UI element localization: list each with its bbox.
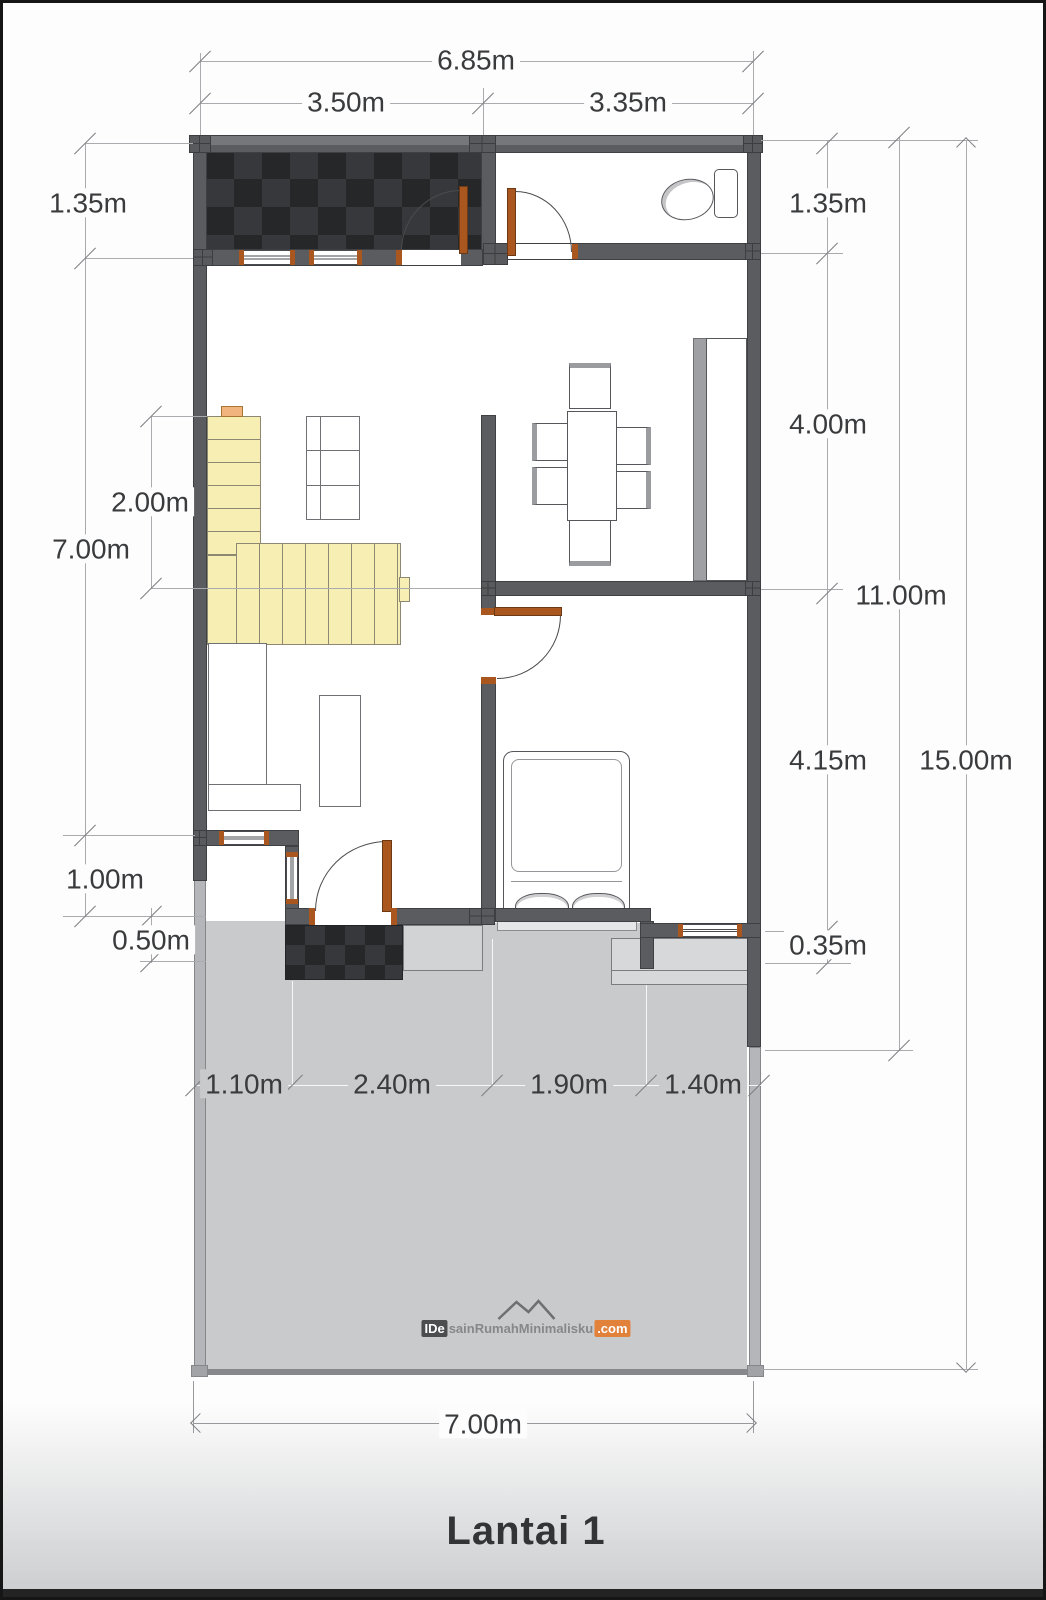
dining-chair-bottom — [569, 519, 611, 566]
stair-side-cabinet — [306, 416, 360, 520]
dim-label-left-stair-length: 2.00m — [106, 487, 194, 516]
extension-line — [200, 53, 201, 135]
dining-chair-right-1 — [614, 427, 651, 465]
dim-line-right-inner — [827, 140, 828, 963]
pillar-front-door-right — [469, 908, 495, 925]
dim-line-left-outer — [85, 143, 86, 917]
staircase-upper-flight — [207, 416, 261, 557]
bedroom-door-jamb-top — [481, 608, 496, 615]
pillar-porch-left — [193, 249, 213, 266]
page-bottom-border — [3, 1589, 1043, 1600]
bed-blanket — [511, 759, 622, 872]
staircase-start-tab — [221, 406, 243, 417]
staircase-lower-flight — [236, 543, 401, 645]
bathroom-door-leaf — [508, 189, 515, 255]
dining-table — [567, 411, 617, 521]
step-edge-line — [612, 970, 760, 971]
front-door-jamb-right — [391, 908, 397, 925]
watermark-roof-icon — [495, 1298, 557, 1320]
dim-label-right-total-depth: 15.00m — [914, 745, 1017, 774]
extension-line — [483, 88, 484, 135]
dining-bedroom-divider-wall — [481, 581, 761, 596]
bedroom-outside-step — [611, 938, 761, 985]
watermark-brand-middle: sainRumahMinimalisku — [448, 1320, 594, 1337]
bedroom-door-jamb-bottom — [481, 677, 496, 684]
extension-line — [761, 140, 978, 141]
pillar-living-sw — [193, 830, 207, 846]
dim-label-left-porch-depth: 1.00m — [61, 864, 149, 893]
bathroom-door-jamb — [572, 244, 578, 259]
dining-chair-right-2 — [614, 471, 651, 509]
pillar-top-left — [189, 135, 211, 153]
bedroom-door-leaf — [495, 608, 561, 615]
dim-label-right-house-depth: 11.00m — [850, 580, 951, 609]
left-fence-cap — [191, 1365, 208, 1377]
living-room-window — [219, 831, 269, 845]
porch-door-opening — [402, 250, 461, 265]
side-wall-window — [286, 852, 298, 904]
sofa-long-seat — [208, 643, 267, 793]
bedroom-door-opening — [481, 615, 496, 677]
porch-door-jamb — [396, 250, 402, 265]
pillar-bath-right — [745, 243, 761, 260]
right-fence-cap — [747, 1365, 764, 1377]
staircase-end-tab — [399, 577, 410, 602]
extension-line-yard — [646, 985, 647, 1085]
front-door-jamb-left — [309, 908, 315, 925]
porch-window-2 — [309, 250, 362, 265]
dining-chair-left-2 — [532, 467, 569, 505]
extension-line — [761, 253, 843, 254]
dim-label-bottom-segment-2: 2.40m — [348, 1069, 436, 1098]
extension-line — [761, 1369, 978, 1370]
pillar-divider-left — [481, 581, 496, 596]
bedroom-south-wall — [495, 908, 651, 922]
extension-line — [151, 588, 481, 589]
extension-line — [765, 963, 851, 964]
coffee-table — [319, 695, 361, 807]
watermark-brand-prefix: IDe — [421, 1320, 447, 1337]
extension-line-yard — [492, 939, 493, 1085]
porch-door-leaf — [460, 187, 467, 253]
dim-label-top-right-segment: 3.35m — [584, 87, 672, 116]
entry-side-step — [403, 925, 483, 971]
dim-label-right-entry-depth: 1.35m — [784, 188, 872, 217]
watermark-brand-suffix: .com — [594, 1320, 630, 1337]
dining-chair-top — [569, 363, 611, 409]
dim-label-right-step-depth: 0.35m — [784, 930, 872, 959]
west-wall — [193, 135, 207, 881]
dim-label-bottom-total: 7.00m — [439, 1409, 527, 1438]
extension-line — [85, 258, 193, 259]
dining-chair-left-1 — [532, 423, 569, 461]
bedroom-window — [678, 924, 742, 937]
porch-window-1 — [239, 250, 295, 265]
pillar-top-right — [743, 135, 763, 153]
dim-label-left-house-depth: 7.00m — [47, 534, 135, 563]
extension-line — [765, 1050, 913, 1051]
extension-line — [151, 416, 207, 417]
pillar-divider-right — [745, 581, 761, 596]
pillar-bath-door — [483, 243, 508, 265]
dining-cabinet-front — [706, 338, 747, 581]
page-title: Lantai 1 — [446, 1509, 605, 1554]
bed-fold-line — [511, 881, 622, 882]
front-door-leaf — [383, 841, 391, 911]
pillar-top-mid — [469, 135, 496, 153]
sofa-corner-seat — [208, 784, 301, 811]
dim-label-top-left-segment: 3.50m — [302, 87, 390, 116]
entry-step-tiles — [285, 925, 403, 980]
dim-label-left-step-depth: 0.50m — [107, 925, 195, 954]
floor-plan-canvas: 6.85m 3.50m 3.35m 1.35m 1.35m 4.00m 2.00… — [0, 0, 1046, 1600]
dim-label-bottom-segment-1: 1.10m — [200, 1069, 288, 1098]
dim-label-right-dining-depth: 4.00m — [784, 409, 872, 438]
dim-label-bottom-segment-4: 1.40m — [659, 1069, 747, 1098]
dining-cabinet-side — [693, 338, 707, 581]
dim-label-top-total: 6.85m — [432, 45, 520, 74]
dim-label-left-entry-depth: 1.35m — [44, 188, 132, 217]
extension-line — [85, 143, 193, 144]
toilet-tank — [714, 169, 738, 218]
left-fence-wall — [194, 879, 206, 1371]
extension-line — [753, 51, 754, 135]
extension-line-yard — [292, 981, 293, 1085]
dim-label-right-bedroom-depth: 4.15m — [784, 745, 872, 774]
right-fence-wall — [749, 1047, 761, 1371]
watermark: IDesainRumahMinimalisku.com — [421, 1298, 630, 1337]
dim-label-bottom-segment-3: 1.90m — [525, 1069, 613, 1098]
